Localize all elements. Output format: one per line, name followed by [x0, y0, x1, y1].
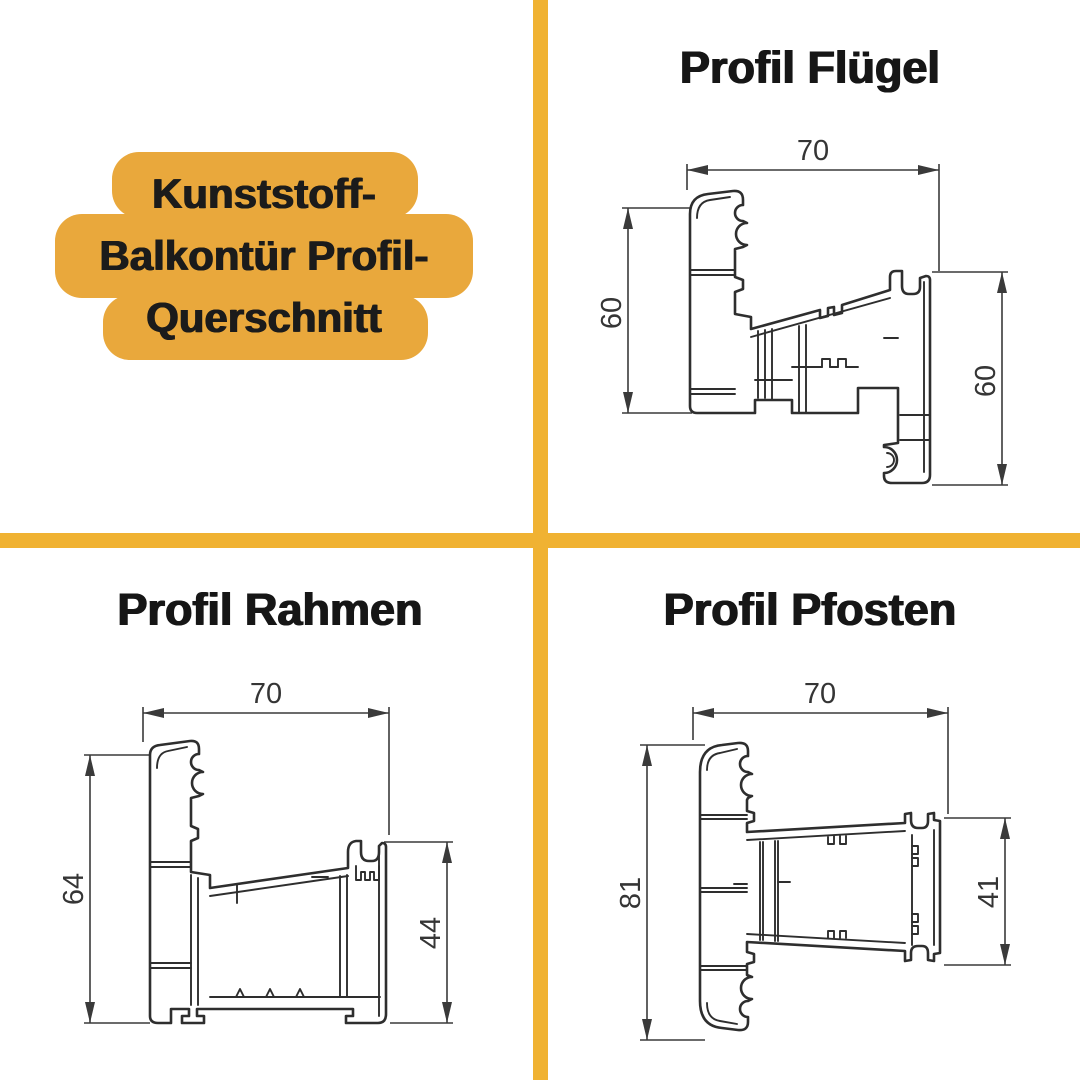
- pfosten-dim-left-label: 81: [615, 877, 647, 909]
- rahmen-dim-right: 44: [384, 842, 453, 1023]
- fluegel-dim-left: 60: [596, 208, 692, 413]
- pfosten-dim-right: 41: [944, 818, 1011, 965]
- main-title-line-1: Kunststoff-: [152, 163, 376, 225]
- main-title: Kunststoff- Balkontür Profil- Querschnit…: [55, 150, 473, 362]
- rahmen-dim-left: 64: [58, 755, 150, 1023]
- main-title-badge: Kunststoff- Balkontür Profil- Querschnit…: [55, 150, 473, 362]
- pfosten-dim-right-label: 41: [973, 876, 1005, 908]
- rahmen-drawing: 70 64 44: [50, 680, 470, 1052]
- main-title-line-2: Balkontür Profil-: [99, 225, 428, 287]
- pfosten-drawing: 70 81 41: [600, 680, 1030, 1060]
- pfosten-profile-outline: [700, 743, 940, 1030]
- pfosten-dim-width-label: 70: [804, 678, 836, 710]
- fluegel-section-title: Profil Flügel: [540, 42, 1080, 94]
- fluegel-drawing: 70 60 60: [600, 130, 1020, 520]
- rahmen-dim-right-label: 44: [415, 917, 447, 949]
- fluegel-dim-left-label: 60: [596, 297, 628, 329]
- rahmen-profile-outline: [150, 741, 386, 1023]
- pfosten-dim-left: 81: [615, 745, 705, 1040]
- vertical-divider-bar: [533, 0, 548, 1080]
- fluegel-profile-outline: [690, 191, 930, 483]
- fluegel-dim-width-label: 70: [797, 135, 829, 167]
- rahmen-section-title: Profil Rahmen: [0, 584, 540, 636]
- fluegel-dim-right-label: 60: [970, 365, 1002, 397]
- rahmen-dim-left-label: 64: [58, 873, 90, 905]
- pfosten-section-title: Profil Pfosten: [540, 584, 1080, 636]
- main-title-line-3: Querschnitt: [146, 287, 382, 349]
- infographic-page: Kunststoff- Balkontür Profil- Querschnit…: [0, 0, 1080, 1080]
- fluegel-dim-right: 60: [932, 272, 1008, 485]
- rahmen-dim-width-label: 70: [250, 678, 282, 710]
